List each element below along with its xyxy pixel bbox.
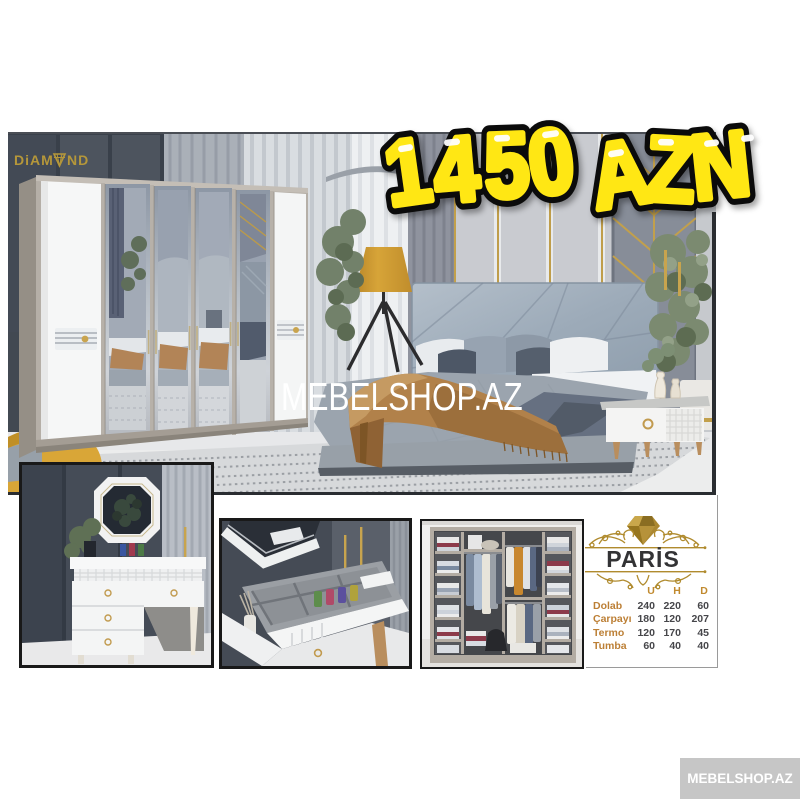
svg-text:Dolab: Dolab bbox=[593, 600, 622, 612]
svg-text:240: 240 bbox=[637, 600, 655, 612]
svg-text:Çarpayı: Çarpayı bbox=[593, 613, 632, 625]
svg-text:120: 120 bbox=[663, 613, 681, 625]
svg-text:H: H bbox=[673, 585, 681, 597]
svg-text:PARİS: PARİS bbox=[606, 546, 680, 572]
svg-text:Tumba: Tumba bbox=[593, 640, 627, 652]
svg-text:120: 120 bbox=[637, 627, 655, 639]
svg-text:D: D bbox=[700, 585, 708, 597]
svg-text:207: 207 bbox=[691, 613, 709, 625]
svg-text:DiAM: DiAM bbox=[14, 152, 54, 168]
svg-text:ND: ND bbox=[67, 152, 89, 168]
svg-text:170: 170 bbox=[663, 627, 681, 639]
svg-text:45: 45 bbox=[697, 627, 709, 639]
svg-text:40: 40 bbox=[669, 640, 681, 652]
svg-text:40: 40 bbox=[697, 640, 709, 652]
svg-text:4: 4 bbox=[429, 118, 483, 223]
svg-text:N: N bbox=[686, 113, 755, 220]
svg-text:220: 220 bbox=[663, 600, 681, 612]
svg-text:U: U bbox=[647, 585, 655, 597]
svg-text:0: 0 bbox=[523, 113, 580, 216]
svg-text:Termo: Termo bbox=[593, 627, 624, 639]
svg-text:60: 60 bbox=[643, 640, 655, 652]
svg-text:1: 1 bbox=[378, 119, 437, 226]
svg-text:60: 60 bbox=[697, 600, 709, 612]
svg-text:180: 180 bbox=[637, 613, 655, 625]
